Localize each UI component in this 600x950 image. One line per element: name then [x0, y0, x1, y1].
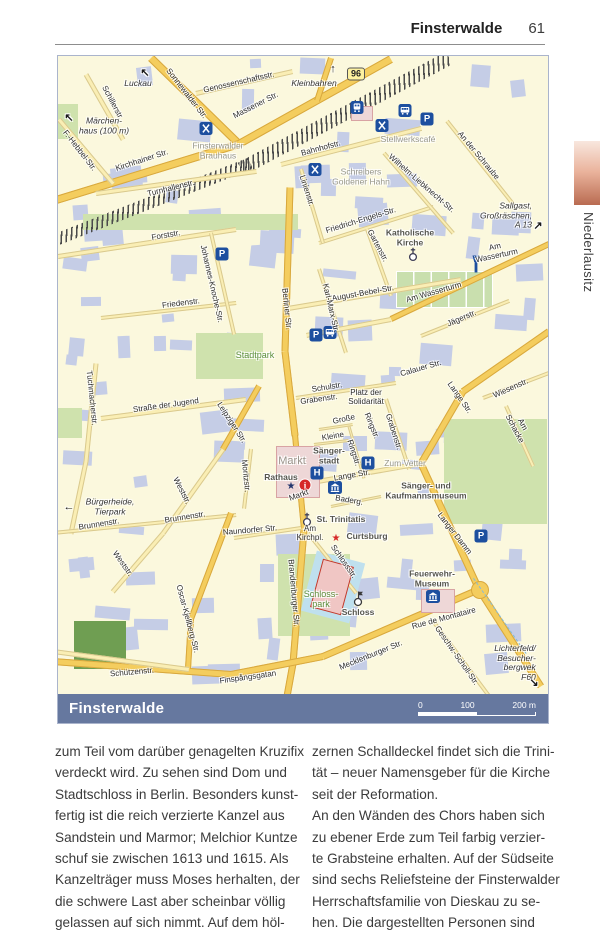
direction-arrow-icon: ↑	[330, 63, 336, 75]
street-label: Weststr.	[170, 476, 191, 506]
parking-icon: P	[421, 113, 434, 126]
train-marker	[351, 101, 364, 119]
restaurant-icon	[200, 122, 213, 135]
direction-arrow-icon: ←	[64, 501, 75, 513]
direction-arrow-icon: ↖	[64, 112, 73, 124]
building-block	[173, 263, 187, 281]
road-segment	[461, 328, 548, 394]
scale-tick-100: 100	[460, 701, 474, 710]
poi-label: St. Trinitatis	[317, 515, 366, 525]
building-block	[470, 64, 490, 88]
poi-label: Sänger- und Kaufmannsmuseum	[365, 481, 487, 500]
direction-arrow-icon: ↖	[140, 67, 149, 79]
quarter-label: Markt	[278, 455, 306, 467]
castle-icon	[352, 591, 365, 607]
street-label: Genossenschaftsstr.	[203, 70, 276, 95]
building-block	[399, 523, 433, 536]
street-label: Wiesenstr.	[492, 377, 530, 400]
destination-label: Sallgast, Großräschen, A 13	[480, 202, 532, 231]
building-block	[69, 557, 95, 572]
direction-arrow-icon: ↗	[533, 220, 542, 232]
church-icon	[407, 247, 419, 262]
building-block	[258, 617, 273, 638]
train-station-icon	[351, 101, 364, 114]
poi-label: Rathaus	[264, 473, 298, 483]
street-label: Jägerstr.	[446, 309, 478, 329]
direction-arrow-icon: ↘	[529, 677, 538, 689]
hotel-marker: H	[311, 467, 324, 480]
poi-label: Schloss	[342, 608, 375, 618]
page-title: Finsterwalde	[411, 20, 503, 37]
poi-label: Stellwerkscafé	[381, 135, 436, 145]
building-block	[153, 336, 165, 351]
building-block	[260, 564, 275, 582]
restaurant-icon	[309, 163, 322, 176]
building-block	[169, 339, 191, 349]
road-segment	[282, 351, 299, 436]
church-marker	[407, 247, 419, 267]
building-block	[249, 59, 260, 68]
parking-icon: P	[216, 248, 229, 261]
building-block	[161, 314, 174, 324]
street-label: Schützenstr.	[110, 667, 155, 680]
article-column-left: zum Teil vom darüber genagelten Kruzifix…	[55, 741, 305, 934]
street-label: Geschw.-Scholl-Str.	[432, 625, 479, 687]
building-block	[95, 605, 131, 620]
badge-marker: 96	[347, 68, 365, 81]
region-tab	[574, 141, 600, 205]
museum-icon	[426, 590, 440, 603]
region-tab-label: Niederlausitz	[581, 212, 596, 292]
article-column-right: zernen Schalldeckel findet sich die Trin…	[312, 741, 562, 934]
destination-label: Bürgerheide, Tierpark	[86, 497, 135, 516]
building-block	[500, 560, 526, 570]
route-96-badge: 96	[347, 68, 365, 81]
restaurant-icon	[376, 119, 389, 132]
poi-label: Zum Vetter	[384, 459, 426, 469]
poi-label: Finsterwalder Brauhaus	[192, 141, 243, 160]
parking-marker: P	[475, 530, 488, 543]
street-label: An der Schraube	[455, 130, 500, 182]
poi-label: Schreibers Goldener Hahn	[332, 167, 390, 186]
poi-label: Katholische Kirche	[386, 228, 434, 247]
parking-icon: P	[310, 329, 323, 342]
poi-label: Curtsburg	[346, 532, 387, 542]
destination-label: Luckau	[124, 79, 151, 89]
street-label: Brunnenstr.	[164, 510, 206, 525]
park-label: Stadtpark	[236, 350, 275, 360]
street-label: Am Kirchpl.	[297, 525, 324, 543]
bus-marker	[399, 104, 412, 122]
museum-marker	[426, 590, 440, 608]
hotel-icon: H	[311, 467, 324, 480]
building-block	[323, 268, 357, 279]
building-block	[266, 637, 279, 660]
restaurant-marker	[309, 163, 322, 181]
poi-label: Sänger- stadt	[313, 446, 345, 465]
street-label: Platz der Solidarität	[348, 389, 384, 407]
destination-label: Kleinbahren	[291, 79, 336, 89]
bus-icon	[399, 104, 412, 117]
scale-tick-0: 0	[418, 701, 423, 710]
parking-marker: P	[216, 248, 229, 261]
park-label: Schloss- park	[304, 589, 339, 609]
building-block	[510, 79, 526, 98]
building-block	[117, 335, 130, 357]
map-scale-bar: 0 100 200 m	[418, 701, 536, 716]
restaurant-marker	[200, 122, 213, 140]
map-title-bar: Finsterwalde 0 100 200 m	[58, 694, 548, 723]
parking-marker: P	[310, 329, 323, 342]
street-label: F.-Hebbel-Str.	[60, 129, 97, 173]
parking-icon: P	[475, 530, 488, 543]
building-block	[495, 314, 528, 331]
scale-tick-200: 200 m	[512, 701, 536, 710]
street-label: Weststr.	[110, 550, 134, 579]
park-area	[58, 408, 82, 438]
building-block	[516, 263, 544, 281]
destination-label: Märchen- haus (100 m)	[79, 116, 129, 135]
page-header: Finsterwalde 61	[55, 20, 545, 45]
page-number: 61	[528, 20, 545, 37]
building-block	[299, 57, 325, 74]
building-block	[134, 475, 149, 487]
map-title: Finsterwalde	[58, 700, 418, 717]
building-block	[68, 338, 85, 358]
building-block	[134, 618, 168, 629]
street-label: Moritzstr.	[239, 459, 251, 492]
parking-marker: P	[421, 113, 434, 126]
building-block	[81, 297, 101, 306]
map-canvas: PPPPHHi★★96Sonnewalder Str.Genossenschaf…	[58, 56, 548, 694]
city-map: PPPPHHi★★96Sonnewalder Str.Genossenschaf…	[57, 55, 549, 724]
street-label: Massener Str.	[232, 91, 280, 121]
poi-label: Feuerwehr- Museum	[409, 569, 455, 588]
